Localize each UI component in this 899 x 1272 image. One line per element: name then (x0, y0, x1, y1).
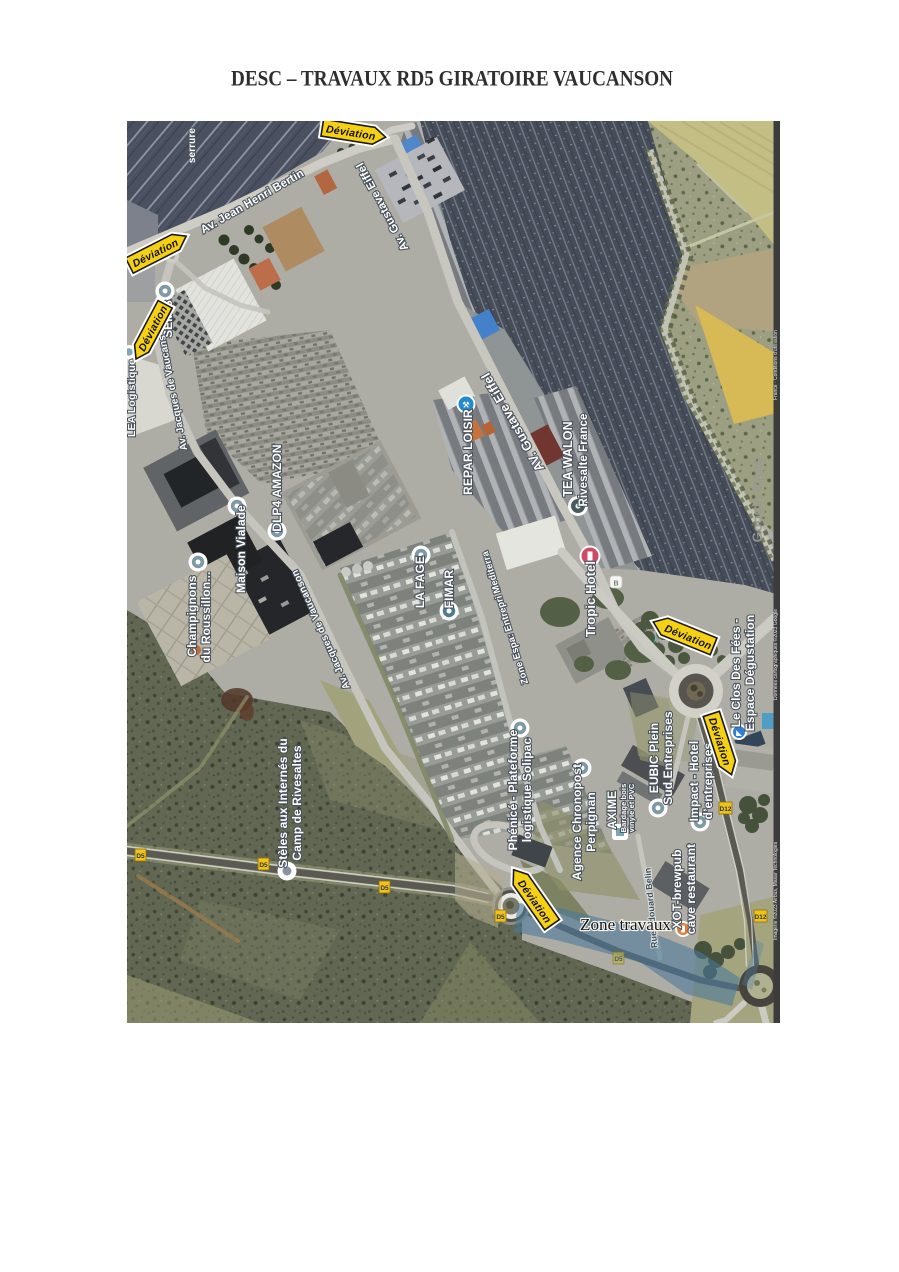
svg-text:Imagerie ©2023 Airbus, Maxar T: Imagerie ©2023 Airbus, Maxar Technologie… (772, 841, 779, 940)
svg-text:Le Clos Des Fées -: Le Clos Des Fées - (729, 619, 743, 728)
svg-text:vinyle et PVC: vinyle et PVC (627, 783, 636, 832)
svg-text:REPAR LOISIR: REPAR LOISIR (461, 409, 475, 495)
svg-text:Espace Dégustation: Espace Dégustation (743, 615, 757, 732)
svg-text:Google Maps: Google Maps (750, 458, 765, 543)
svg-text:D5: D5 (614, 956, 623, 963)
svg-text:du Roussillon...: du Roussillon... (199, 572, 213, 663)
svg-text:logistique Solipac: logistique Solipac (520, 738, 534, 843)
svg-text:Données cartographiques ©2023: Données cartographiques ©2023 Google (772, 609, 779, 700)
svg-text:serrure: serrure (187, 128, 198, 164)
svg-text:D12: D12 (720, 806, 732, 813)
svg-text:Impact - Hotel: Impact - Hotel (687, 741, 701, 822)
svg-text:Perpignan: Perpignan (584, 792, 598, 852)
svg-text:D5: D5 (136, 853, 145, 860)
svg-text:LEA Logistique: LEA Logistique (126, 359, 138, 437)
svg-text:D5: D5 (380, 885, 389, 892)
svg-text:D5: D5 (259, 862, 268, 869)
svg-text:LA FAGE: LA FAGE (413, 556, 427, 608)
svg-text:TEA WALON: TEA WALON (561, 421, 575, 496)
svg-text:Phénicé - Plateforme: Phénicé - Plateforme (506, 729, 520, 850)
svg-text:Sud Entreprises: Sud Entreprises (661, 711, 675, 805)
svg-text:AXIME: AXIME (605, 791, 619, 830)
svg-text:Maison Vialade: Maison Vialade (234, 505, 248, 593)
svg-text:Tropic Hotel: Tropic Hotel (583, 561, 598, 637)
svg-text:Camp de Rivesaltes: Camp de Rivesaltes (290, 745, 304, 860)
svg-text:DLP4 AMAZON: DLP4 AMAZON (270, 444, 284, 531)
svg-text:EUBIC Plein: EUBIC Plein (647, 723, 661, 793)
svg-text:XOT-brewpub: XOT-brewpub (670, 849, 684, 928)
svg-text:Zone travaux: Zone travaux (580, 915, 672, 934)
svg-text:⚒: ⚒ (462, 401, 469, 410)
svg-text:Rivesalte France: Rivesalte France (578, 413, 590, 506)
svg-text:FIMAR: FIMAR (442, 570, 456, 609)
svg-text:Agence Chronopost: Agence Chronopost (570, 764, 584, 880)
svg-text:cave restaurant: cave restaurant (684, 844, 698, 934)
svg-text:Champignons: Champignons (185, 575, 199, 656)
svg-text:B: B (613, 581, 618, 588)
svg-text:Stèles aux Internés du: Stèles aux Internés du (276, 738, 290, 868)
svg-text:D12: D12 (755, 914, 767, 921)
svg-text:D5: D5 (496, 914, 505, 921)
svg-text:DESC – TRAVAUX RD5 GIRATOIRE V: DESC – TRAVAUX RD5 GIRATOIRE VAUCANSON (231, 66, 673, 91)
svg-text:France · Conditions d’utilisat: France · Conditions d’utilisation (773, 330, 779, 400)
svg-text:◣: ◣ (735, 730, 742, 737)
